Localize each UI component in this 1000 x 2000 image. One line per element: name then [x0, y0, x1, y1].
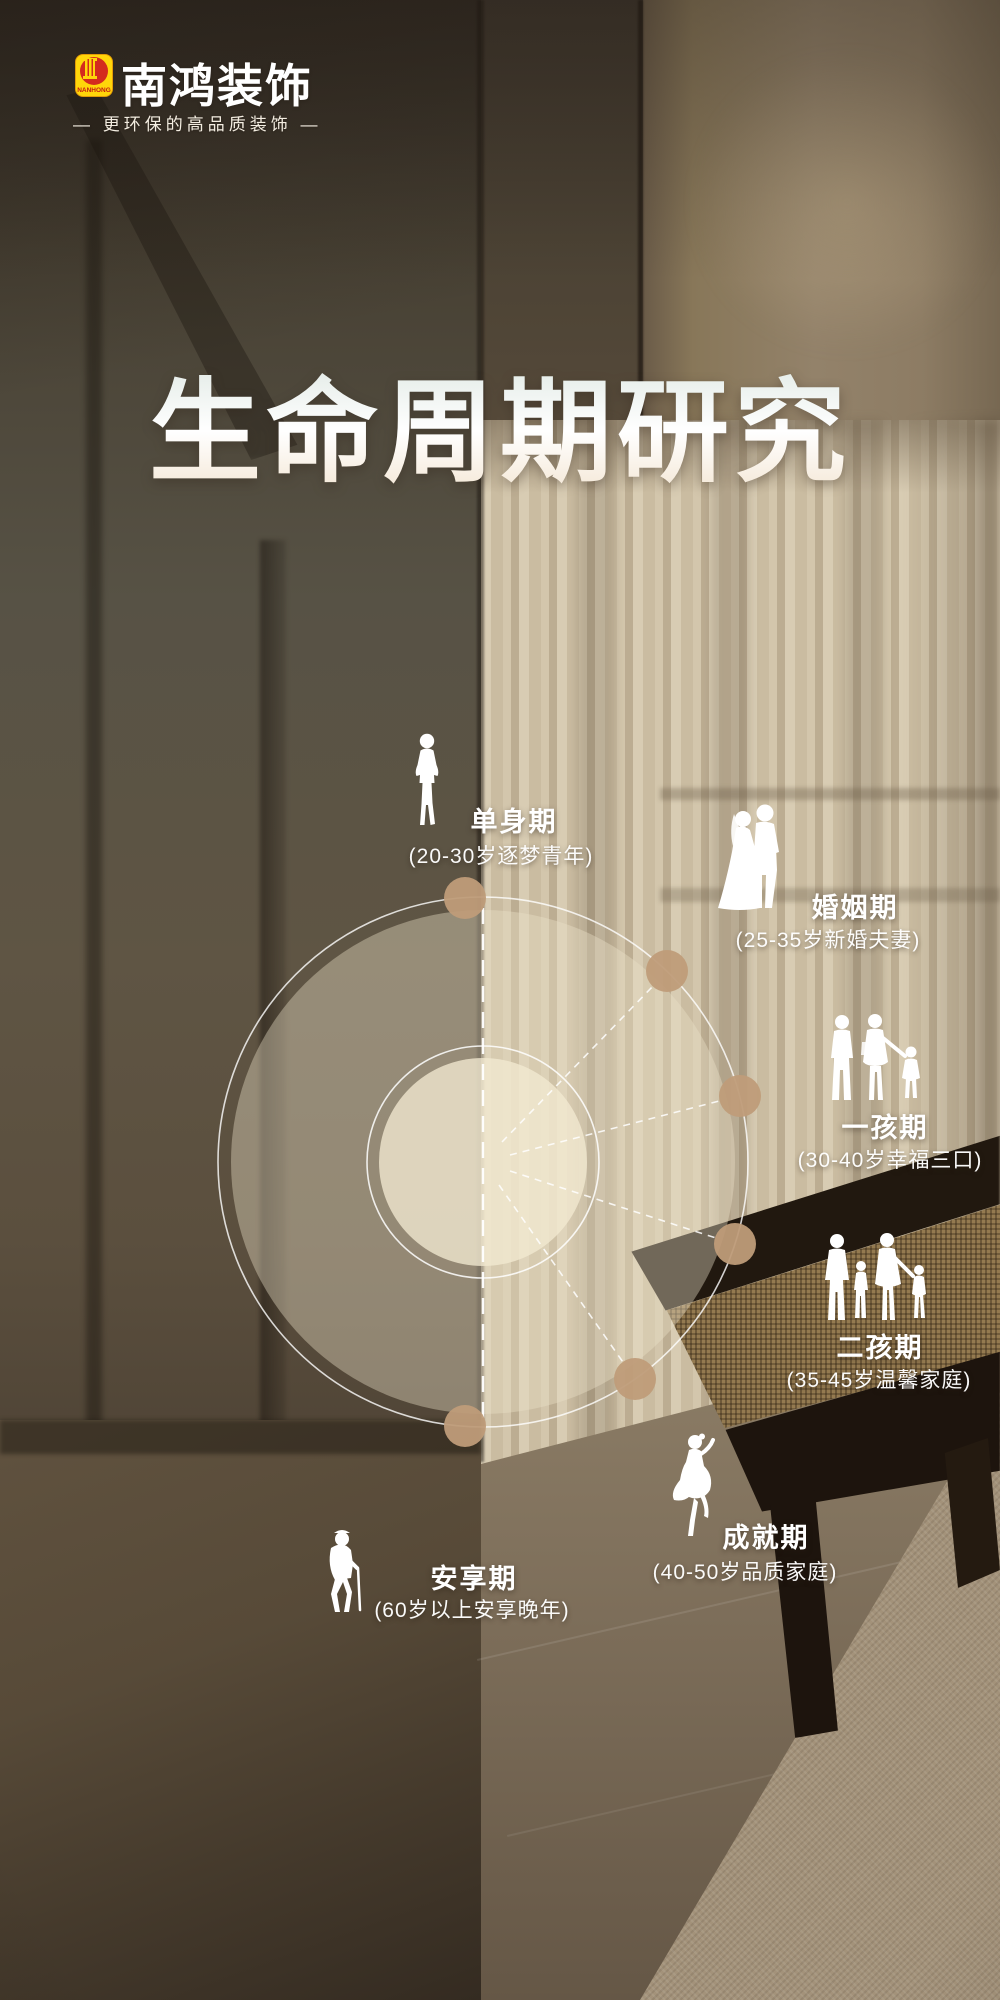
background-vignette — [0, 0, 1000, 2000]
logo-column-base — [83, 76, 97, 79]
logo-wordmark: NANHONG — [76, 87, 112, 94]
brand-tagline: — 更环保的高品质装饰 — — [73, 110, 493, 135]
poster-canvas: NANHONG 南鸿装饰 — 更环保的高品质装饰 — 生命周期研究 单身期 (2… — [0, 0, 1000, 2000]
page-title: 生命周期研究 — [0, 368, 1000, 500]
brand-name: 南鸿装饰 — [121, 50, 481, 116]
brand-logo-icon: NANHONG — [75, 54, 113, 97]
